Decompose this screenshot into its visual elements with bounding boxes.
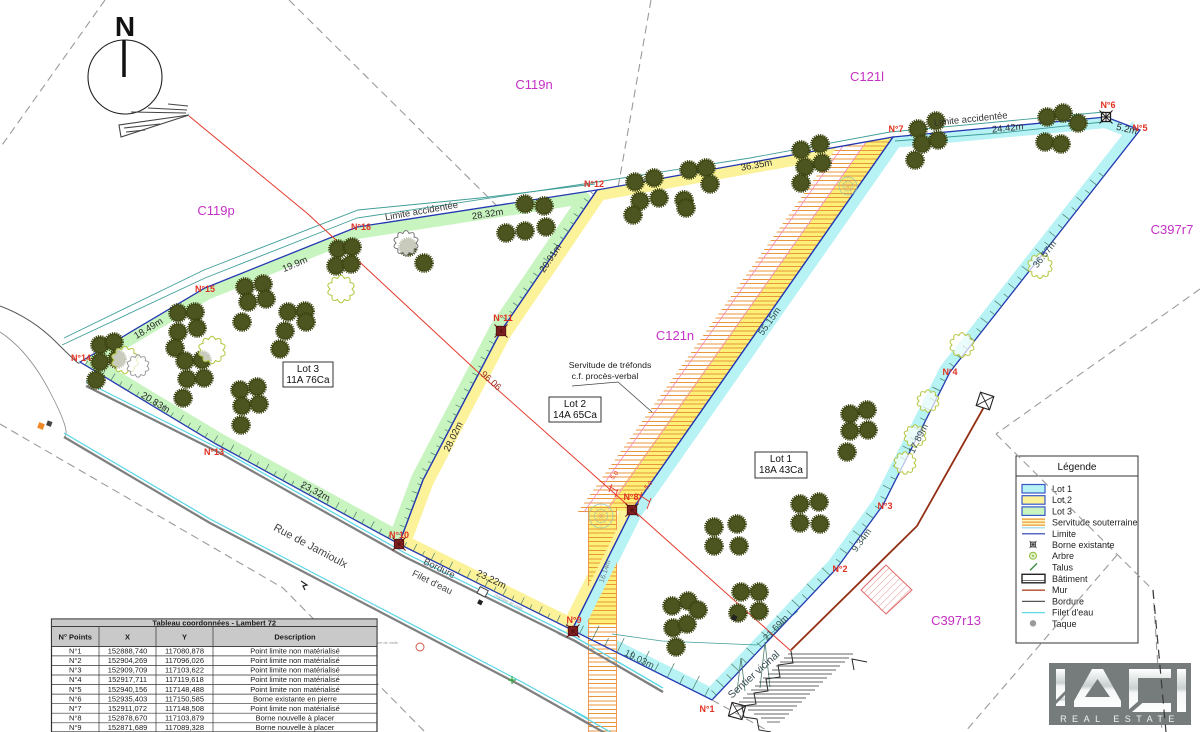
svg-text:117148,508: 117148,508	[165, 704, 204, 713]
svg-text:Taque: Taque	[1052, 619, 1077, 629]
svg-text:N°9: N°9	[566, 615, 581, 625]
svg-text:N°4: N°4	[942, 367, 957, 377]
svg-text:152878,670: 152878,670	[108, 713, 148, 722]
svg-text:Point limite non matérialisé: Point limite non matérialisé	[250, 685, 340, 694]
svg-text:18.49m: 18.49m	[132, 316, 165, 342]
svg-text:N°12: N°12	[584, 179, 604, 189]
svg-text:N°5: N°5	[69, 685, 82, 694]
svg-text:Légende: Légende	[1058, 462, 1097, 473]
svg-text:152888,740: 152888,740	[108, 647, 148, 656]
svg-text:REAL ESTATE: REAL ESTATE	[1060, 714, 1180, 724]
svg-text:C397r13: C397r13	[931, 613, 981, 628]
svg-text:Borne nouvelle à placer: Borne nouvelle à placer	[256, 713, 335, 722]
svg-text:Mur: Mur	[1052, 585, 1068, 595]
svg-text:117148,488: 117148,488	[165, 685, 204, 694]
svg-text:C119n: C119n	[515, 77, 552, 92]
svg-text:Point limite non matérialisé: Point limite non matérialisé	[250, 666, 340, 675]
svg-text:152911,072: 152911,072	[108, 704, 147, 713]
svg-text:N°15: N°15	[195, 284, 215, 294]
svg-text:Lot 1: Lot 1	[770, 454, 793, 465]
svg-text:N°6: N°6	[1100, 100, 1115, 110]
svg-text:N°7: N°7	[888, 124, 903, 134]
svg-text:18A 43Ca: 18A 43Ca	[759, 465, 803, 476]
svg-text:Point limite non matérialisé: Point limite non matérialisé	[250, 647, 340, 656]
svg-text:117089,328: 117089,328	[165, 723, 204, 732]
svg-text:117119,618: 117119,618	[165, 675, 204, 684]
svg-text:Point limite non matérialisé: Point limite non matérialisé	[250, 675, 340, 684]
svg-text:117096,026: 117096,026	[165, 656, 204, 665]
svg-text:Arbre: Arbre	[1052, 551, 1074, 561]
svg-text:Bâtiment: Bâtiment	[1052, 574, 1088, 584]
svg-text:Rue de Jamioulx: Rue de Jamioulx	[271, 522, 349, 571]
svg-text:N°10: N°10	[389, 530, 409, 540]
svg-text:117080,878: 117080,878	[165, 647, 204, 656]
svg-text:N°8: N°8	[69, 713, 82, 722]
svg-text:152940,156: 152940,156	[108, 685, 148, 694]
svg-text:C119p: C119p	[197, 203, 234, 218]
svg-text:N°7: N°7	[69, 704, 82, 713]
svg-text:N°11: N°11	[493, 313, 513, 323]
svg-text:N°14: N°14	[71, 353, 91, 363]
svg-text:N°8: N°8	[623, 492, 638, 502]
svg-text:117103,879: 117103,879	[165, 713, 204, 722]
svg-text:Borne existante: Borne existante	[1052, 540, 1115, 550]
svg-text:152871,689: 152871,689	[108, 723, 148, 732]
svg-text:N°6: N°6	[69, 694, 82, 703]
svg-text:Tableau coordonnées - Lambert: Tableau coordonnées - Lambert 72	[152, 619, 276, 628]
svg-text:N°1: N°1	[69, 647, 82, 656]
svg-text:C121l: C121l	[850, 69, 884, 84]
svg-text:Bordure: Bordure	[1052, 596, 1084, 606]
svg-text:152909,709: 152909,709	[108, 666, 148, 675]
svg-text:N°4: N°4	[69, 675, 82, 684]
svg-text:N°3: N°3	[69, 666, 82, 675]
svg-text:X: X	[125, 633, 130, 642]
svg-text:N°16: N°16	[351, 222, 371, 232]
svg-text:Point limite non matérialisé: Point limite non matérialisé	[250, 656, 340, 665]
svg-text:N°1: N°1	[699, 704, 714, 714]
svg-text:C121n: C121n	[656, 328, 694, 343]
svg-text:Borne existante en pierre: Borne existante en pierre	[253, 694, 337, 703]
svg-text:N° Points: N° Points	[59, 633, 92, 642]
svg-text:117103,622: 117103,622	[165, 666, 204, 675]
svg-text:C397r7: C397r7	[1151, 222, 1194, 237]
svg-text:Talus: Talus	[1052, 562, 1074, 572]
svg-text:Lot 3: Lot 3	[297, 364, 320, 375]
svg-text:Filet d'eau: Filet d'eau	[1052, 608, 1093, 618]
svg-text:14A 65Ca: 14A 65Ca	[553, 410, 597, 421]
svg-text:Y: Y	[182, 633, 187, 642]
svg-text:152917,711: 152917,711	[108, 675, 147, 684]
svg-text:Servitude de tréfonds: Servitude de tréfonds	[569, 360, 652, 370]
svg-text:N°2: N°2	[832, 564, 847, 574]
svg-text:N°9: N°9	[69, 723, 82, 732]
svg-text:11A 76Ca: 11A 76Ca	[286, 375, 330, 386]
svg-text:Point limite non matérialisé: Point limite non matérialisé	[250, 704, 340, 713]
svg-text:Limite: Limite	[1052, 529, 1076, 539]
svg-text:Lot 2: Lot 2	[564, 399, 587, 410]
svg-text:Servitude souterraine: Servitude souterraine	[1052, 518, 1138, 528]
svg-text:Borne nouvelle à placer: Borne nouvelle à placer	[256, 723, 335, 732]
svg-text:N°13: N°13	[204, 447, 224, 457]
svg-text:N°3: N°3	[877, 501, 892, 511]
svg-text:117150,585: 117150,585	[165, 694, 204, 703]
svg-text:c.f. procès-verbal: c.f. procès-verbal	[572, 371, 639, 381]
svg-text:152904,269: 152904,269	[108, 656, 148, 665]
svg-text:N: N	[115, 11, 135, 42]
svg-text:Lot 3: Lot 3	[1052, 506, 1072, 516]
svg-text:N°2: N°2	[69, 656, 82, 665]
svg-text:152935,403: 152935,403	[108, 694, 148, 703]
svg-text:Description: Description	[274, 633, 316, 642]
